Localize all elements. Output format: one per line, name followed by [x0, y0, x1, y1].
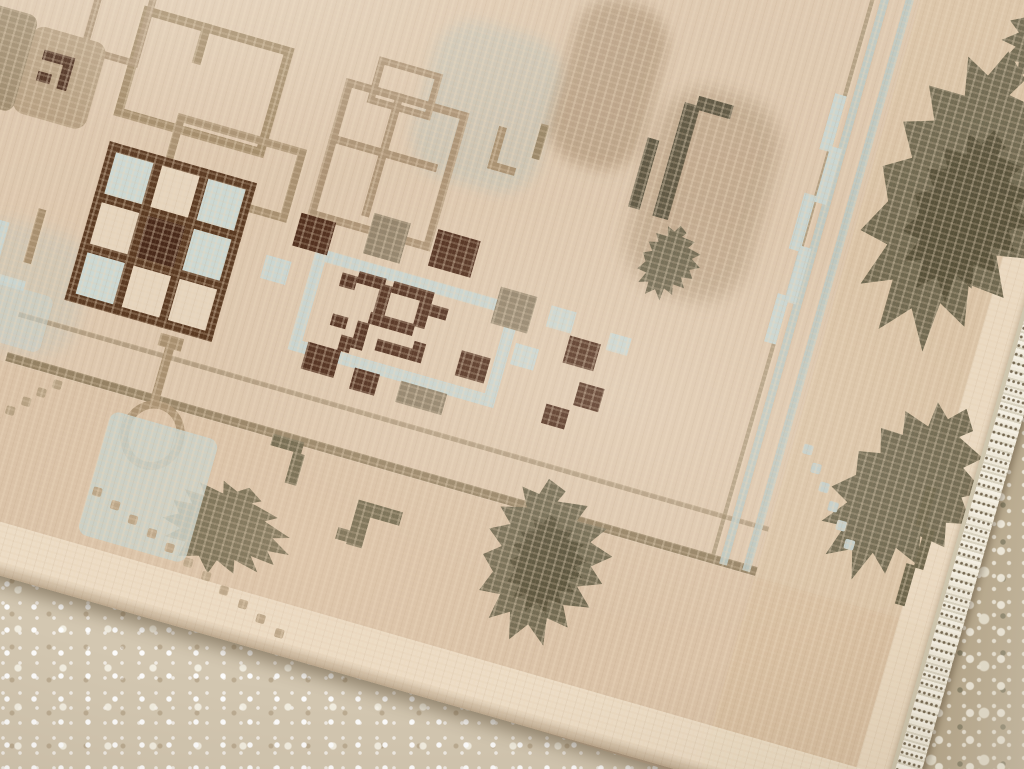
- brown-square: [562, 336, 600, 372]
- blue-square: [260, 255, 292, 285]
- rug-photo-scene: [0, 0, 1024, 769]
- brown-square: [541, 404, 570, 430]
- blue-square: [510, 343, 539, 371]
- blue-square: [546, 305, 577, 333]
- pendant-knob: [158, 333, 185, 352]
- blue-square: [606, 333, 632, 356]
- brown-square: [573, 382, 605, 412]
- brown-square: [428, 229, 481, 278]
